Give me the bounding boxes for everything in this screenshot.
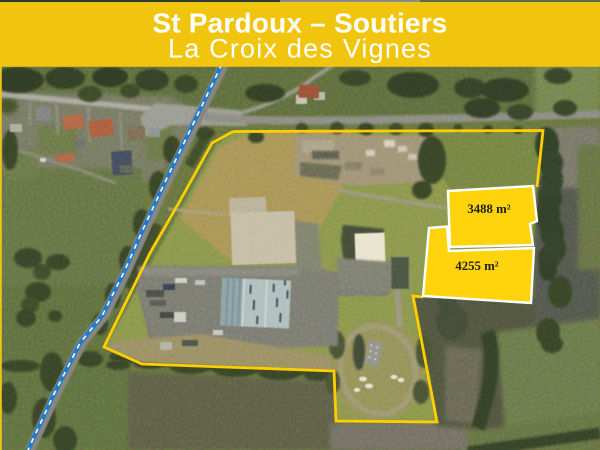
- svg-text:La Croix des Vignes: La Croix des Vignes: [168, 34, 432, 64]
- svg-text:4255 m²: 4255 m²: [455, 259, 498, 273]
- svg-text:3488 m²: 3488 m²: [467, 202, 510, 216]
